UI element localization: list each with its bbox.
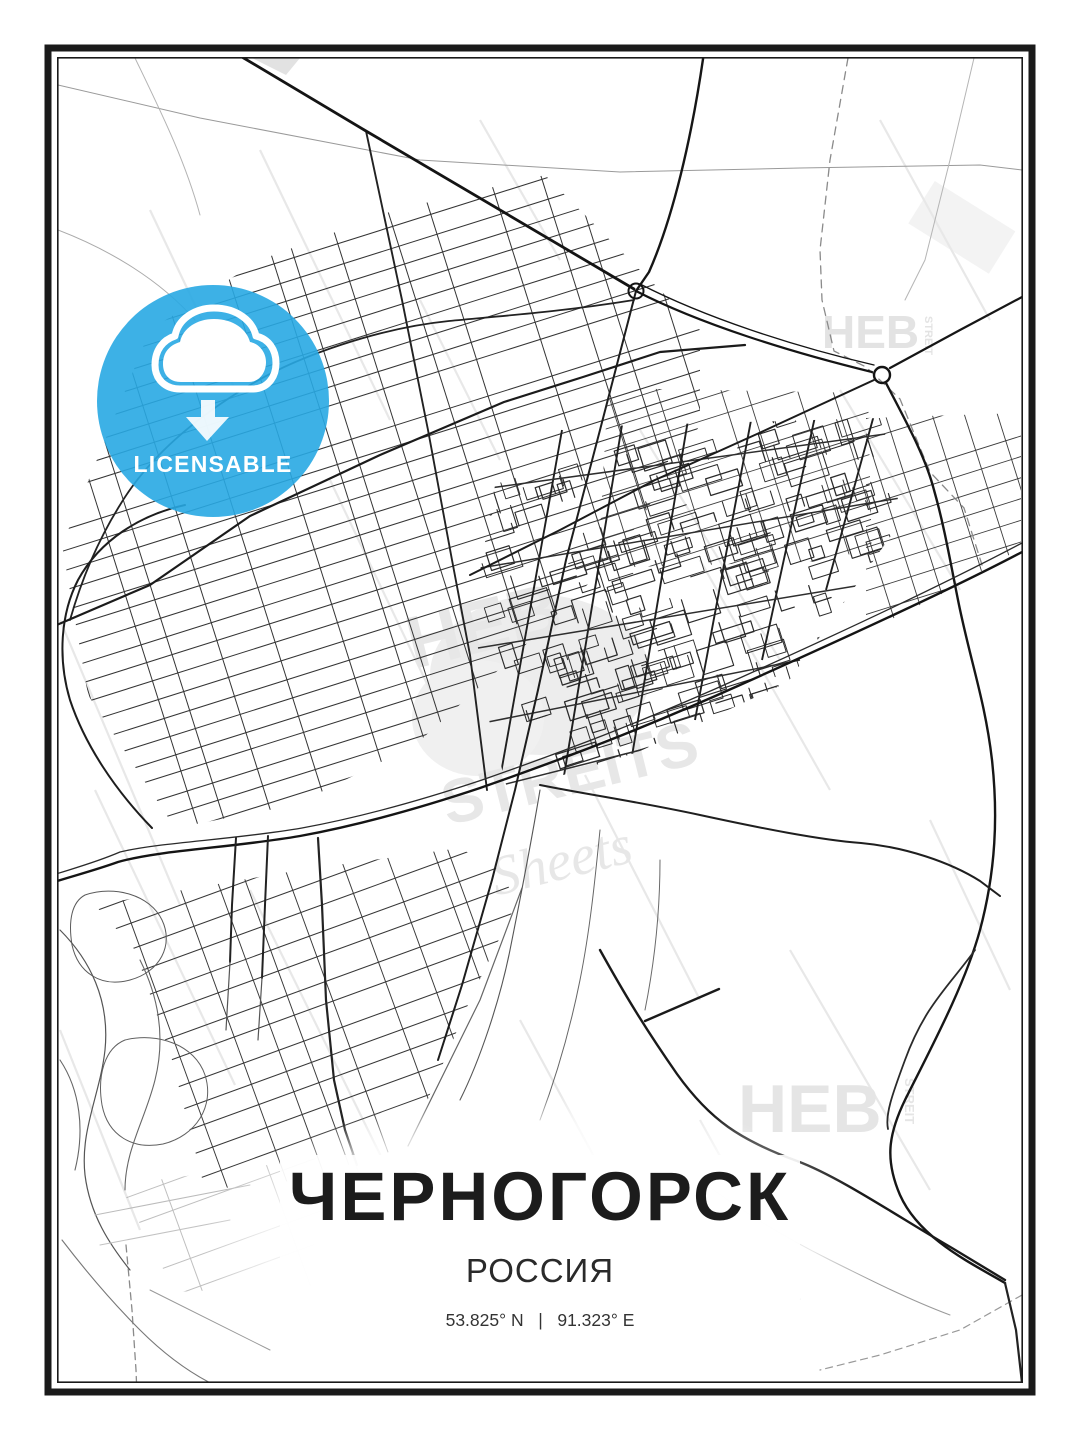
svg-text:LICENSABLE: LICENSABLE — [134, 451, 293, 477]
svg-text:53.825° N | 91.323° E: 53.825° N | 91.323° E — [446, 1310, 635, 1330]
svg-text:ЧЕРНОГОРСК: ЧЕРНОГОРСК — [289, 1158, 791, 1235]
svg-text:HEB: HEB — [822, 306, 919, 358]
svg-text:РОССИЯ: РОССИЯ — [466, 1252, 614, 1289]
